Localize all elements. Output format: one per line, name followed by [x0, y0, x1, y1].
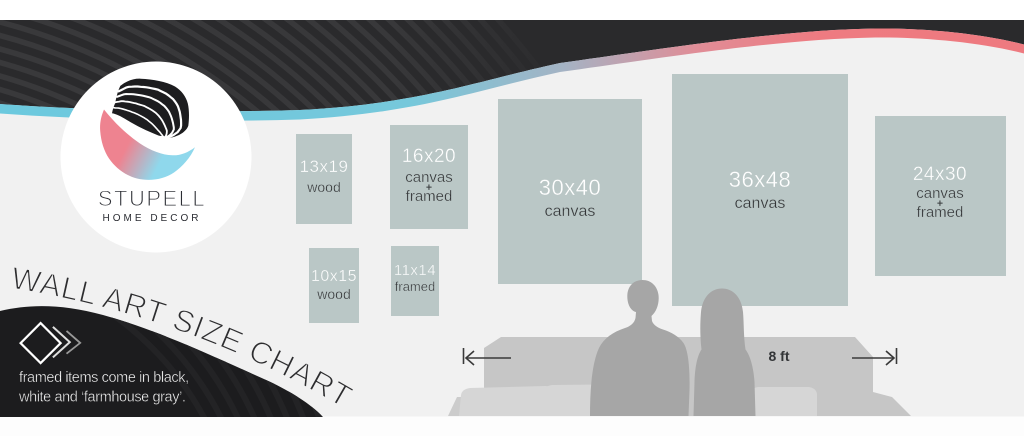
- svg-text:13x19: 13x19: [300, 157, 349, 176]
- svg-text:framed: framed: [406, 188, 453, 205]
- svg-text:white and ‘farmhouse gray’.: white and ‘farmhouse gray’.: [18, 390, 186, 406]
- svg-text:8 ft: 8 ft: [769, 348, 790, 364]
- svg-text:11x14: 11x14: [394, 262, 436, 279]
- svg-text:HOME DECOR: HOME DECOR: [103, 213, 202, 224]
- svg-text:framed items come in black,: framed items come in black,: [19, 370, 189, 386]
- svg-text:wood: wood: [306, 179, 340, 195]
- svg-text:canvas: canvas: [735, 195, 786, 212]
- svg-text:framed: framed: [917, 204, 964, 221]
- svg-text:30x40: 30x40: [539, 175, 601, 200]
- svg-text:16x20: 16x20: [402, 146, 456, 167]
- svg-text:canvas: canvas: [545, 203, 596, 220]
- svg-text:10x15: 10x15: [311, 268, 357, 285]
- svg-text:STUPELL: STUPELL: [98, 186, 206, 211]
- svg-text:24x30: 24x30: [913, 164, 967, 185]
- svg-text:framed: framed: [395, 279, 435, 294]
- svg-text:36x48: 36x48: [729, 167, 791, 192]
- svg-text:wood: wood: [316, 286, 350, 302]
